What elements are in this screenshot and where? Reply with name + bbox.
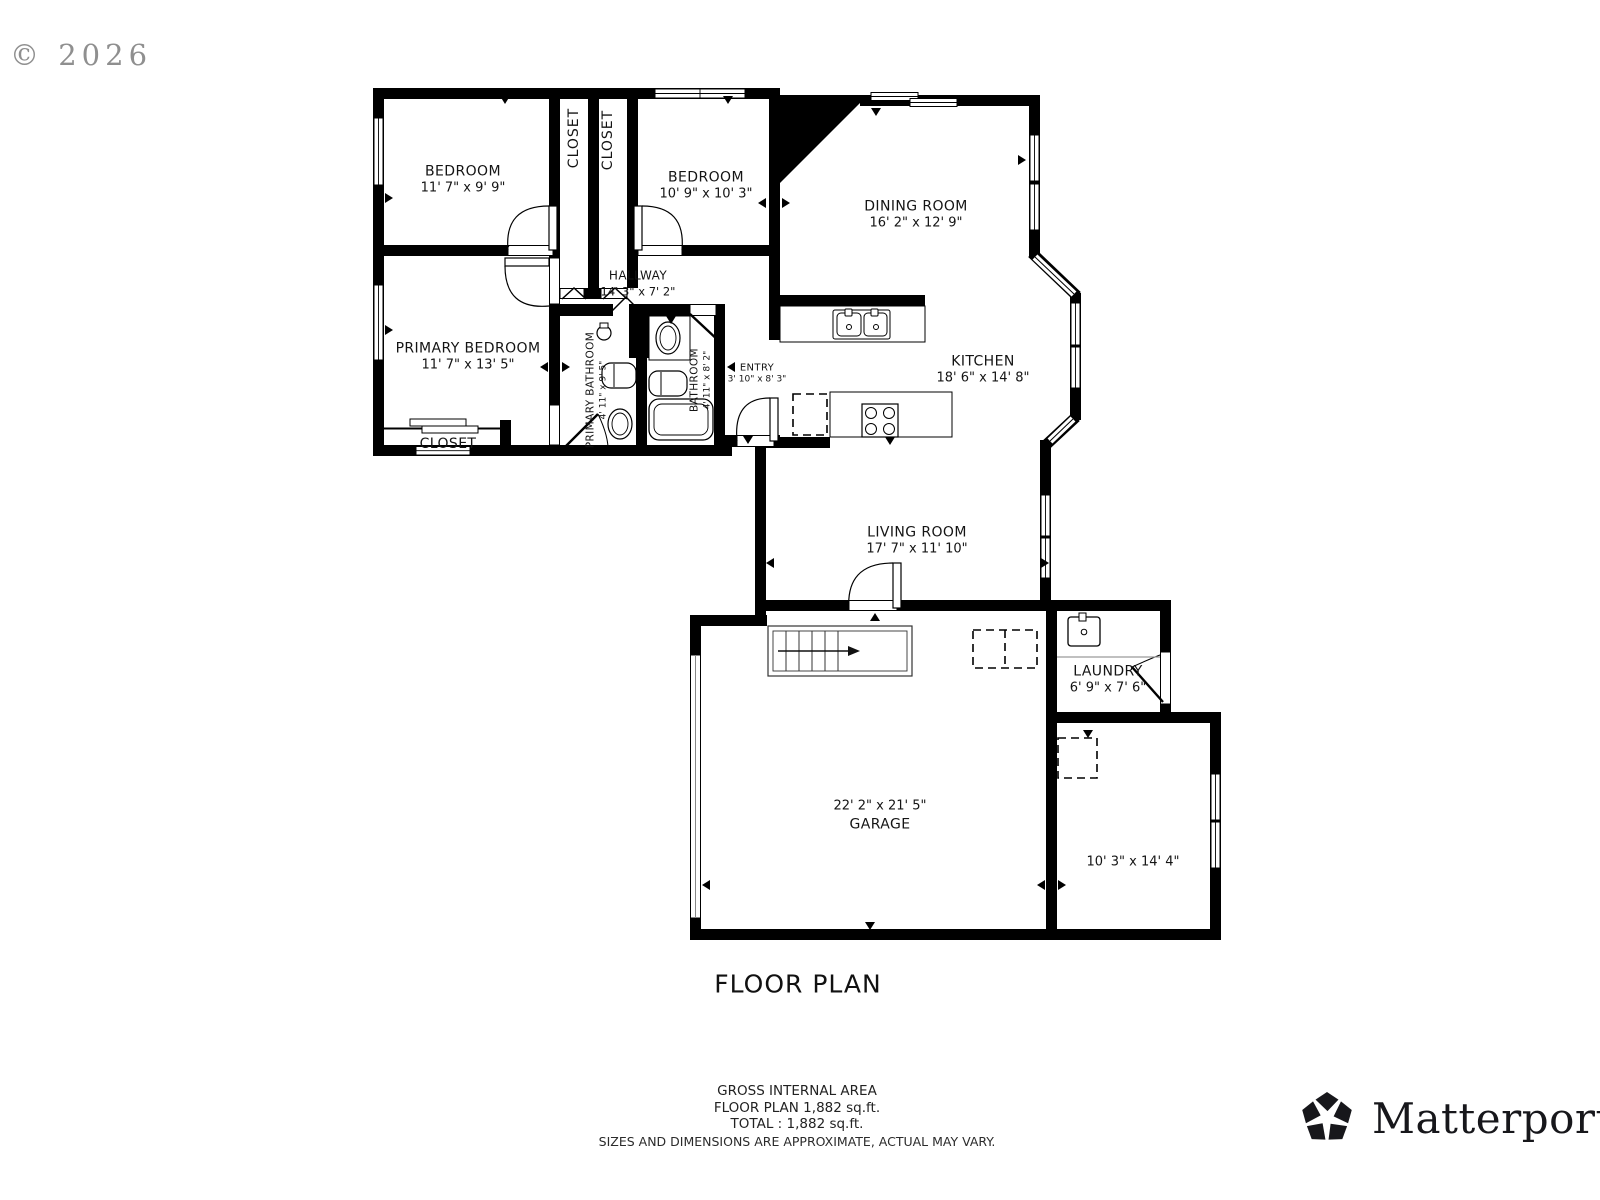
dimension-arrows bbox=[385, 96, 1093, 930]
kitchen-fixtures bbox=[780, 306, 952, 437]
room-label-garage: 22' 2" x 21' 5" GARAGE bbox=[834, 798, 927, 833]
room-label-bathroom: BATHROOM 4' 11" x 8' 2" bbox=[688, 348, 713, 412]
walls bbox=[373, 88, 1221, 940]
room-label-bonus-room: 10' 3" x 14' 4" bbox=[1087, 855, 1180, 872]
page-title: FLOOR PLAN bbox=[714, 970, 881, 999]
garage-door bbox=[691, 655, 701, 918]
room-label-living-room: LIVING ROOM 17' 7" x 11' 10" bbox=[866, 523, 967, 558]
room-label-closet-2: CLOSET bbox=[599, 110, 617, 170]
matterport-wordmark: Matterport® bbox=[1372, 1094, 1600, 1143]
gross-area-heading: GROSS INTERNAL AREA bbox=[599, 1083, 996, 1100]
floor-plan-drawing bbox=[0, 0, 1600, 1200]
dishwasher-outline bbox=[793, 394, 827, 435]
room-label-bedroom-1: BEDROOM 11' 7" x 9' 9" bbox=[421, 162, 506, 197]
room-label-kitchen: KITCHEN 18' 6" x 14' 8" bbox=[937, 352, 1030, 387]
matterport-icon bbox=[1296, 1086, 1358, 1150]
footer-summary: GROSS INTERNAL AREA FLOOR PLAN 1,882 sq.… bbox=[599, 1083, 996, 1150]
total-area: TOTAL : 1,882 sq.ft. bbox=[599, 1116, 996, 1133]
stairs bbox=[768, 626, 912, 676]
room-label-laundry: LAUNDRY 6' 9" x 7' 6" bbox=[1070, 662, 1146, 697]
windows bbox=[374, 89, 1220, 868]
room-label-primary-bedroom: PRIMARY BEDROOM 11' 7" x 13' 5" bbox=[396, 339, 541, 374]
toilet bbox=[649, 371, 687, 396]
laundry-fixtures bbox=[1057, 613, 1160, 657]
room-label-primary-closet: CLOSET bbox=[420, 435, 477, 453]
disclaimer: SIZES AND DIMENSIONS ARE APPROXIMATE, AC… bbox=[599, 1133, 996, 1150]
floor-plan-page: © 2026 bbox=[0, 0, 1600, 1200]
bay-windows bbox=[1035, 257, 1074, 441]
matterport-logo: Matterport® bbox=[1296, 1086, 1600, 1150]
room-label-hallway: HALLWAY 14' 3" x 7' 2" bbox=[601, 269, 676, 300]
room-label-entry: ENTRY 3' 10" x 8' 3" bbox=[728, 362, 787, 387]
room-label-bedroom-2: BEDROOM 10' 9" x 10' 3" bbox=[660, 168, 753, 203]
room-label-closet-1: CLOSET bbox=[565, 108, 583, 168]
room-label-dining-room: DINING ROOM 16' 2" x 12' 9" bbox=[864, 197, 968, 232]
floor-plan-area: FLOOR PLAN 1,882 sq.ft. bbox=[599, 1100, 996, 1117]
furnace-outline bbox=[1058, 738, 1097, 778]
room-label-primary-bathroom: PRIMARY BATHROOM 4' 11" x 9' 5" bbox=[584, 332, 609, 449]
